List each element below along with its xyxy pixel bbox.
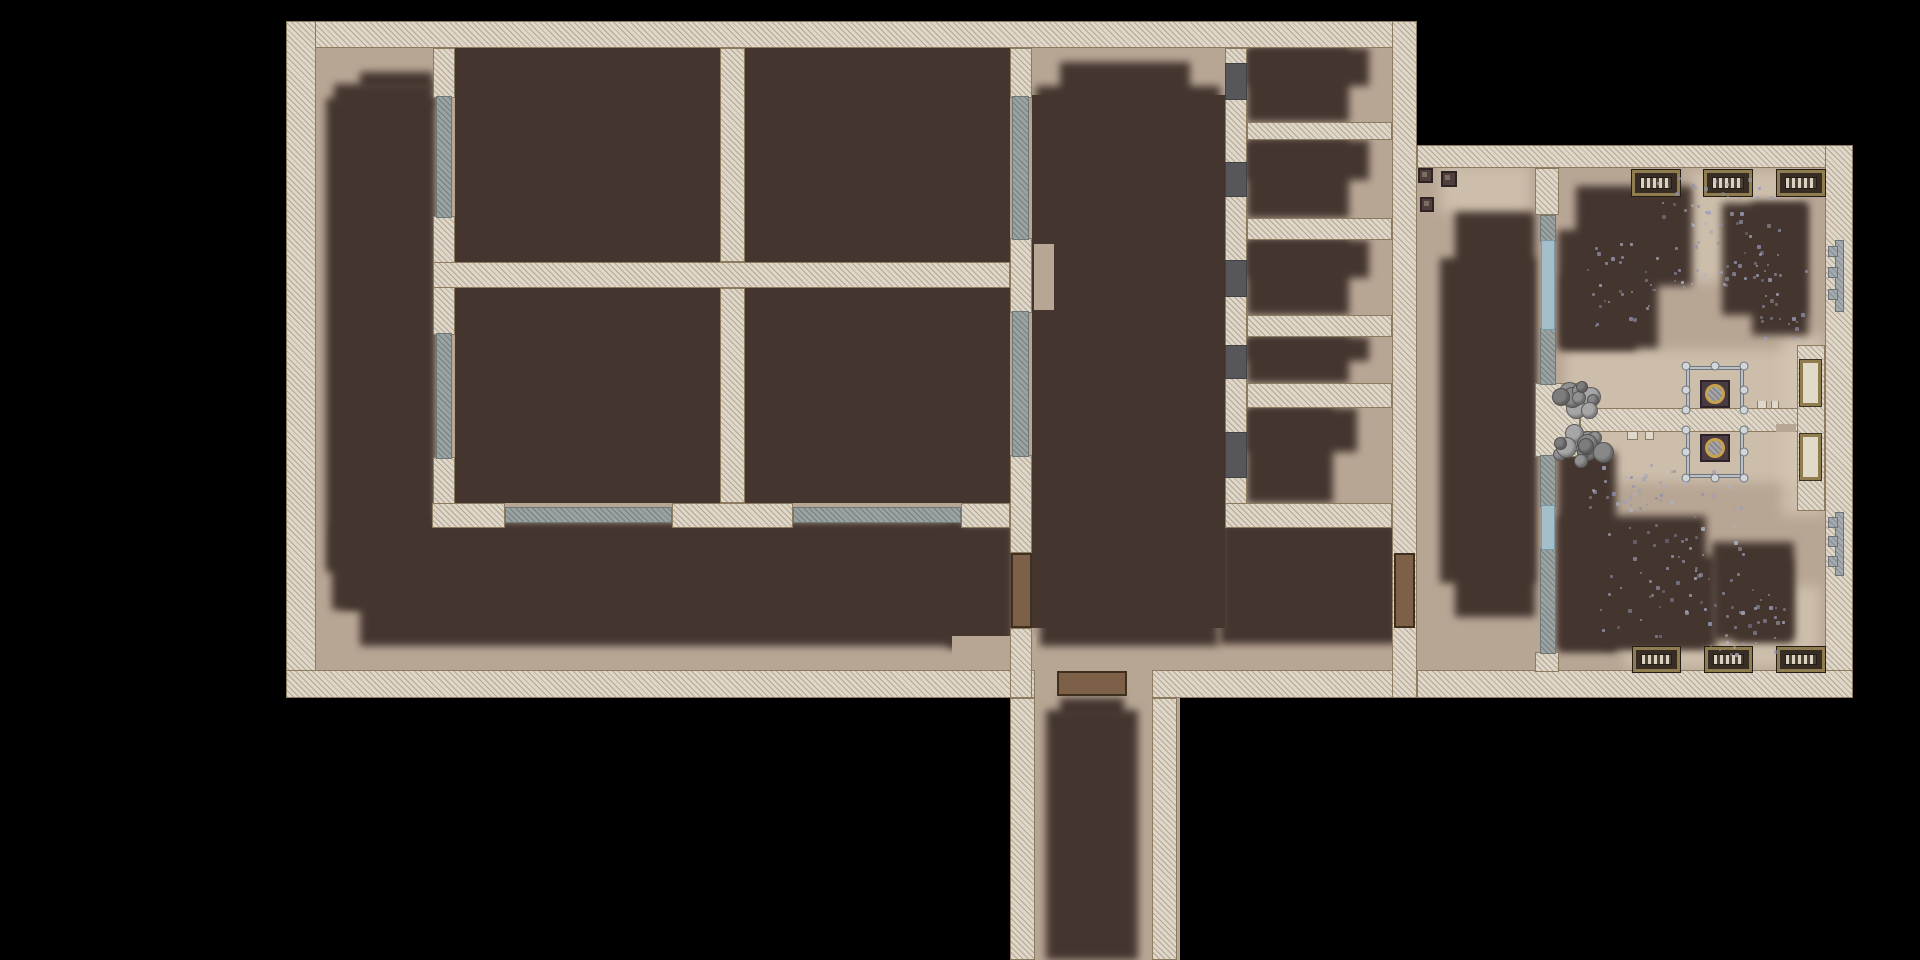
debris-speck bbox=[1774, 637, 1776, 639]
debris-speck bbox=[1604, 300, 1606, 302]
debris-speck bbox=[1662, 202, 1664, 204]
debris-speck bbox=[1592, 489, 1595, 492]
debris-speck bbox=[1778, 229, 1781, 232]
debris-speck bbox=[1760, 599, 1762, 601]
debris-speck bbox=[1606, 496, 1609, 499]
debris-speck bbox=[1630, 476, 1633, 479]
debris-speck bbox=[1673, 470, 1676, 473]
debris-speck bbox=[1620, 243, 1623, 246]
debris-speck bbox=[1763, 619, 1767, 623]
debris-speck bbox=[1718, 203, 1720, 205]
debris-speck bbox=[1597, 252, 1601, 256]
debris-speck bbox=[1675, 192, 1679, 196]
debris-speck bbox=[1788, 323, 1790, 325]
debris-speck bbox=[1744, 252, 1746, 254]
debris-speck bbox=[1683, 481, 1687, 485]
debris-speck bbox=[1779, 318, 1781, 320]
debris-speck bbox=[1748, 178, 1752, 182]
debris-speck bbox=[1654, 289, 1656, 291]
debris-speck bbox=[1633, 492, 1637, 496]
debris-speck bbox=[1646, 307, 1649, 310]
debris-speck bbox=[1667, 186, 1669, 188]
debris-speck bbox=[1770, 317, 1773, 320]
debris-speck bbox=[1683, 286, 1685, 288]
debris-speck bbox=[1587, 269, 1589, 271]
debris-speck bbox=[1755, 642, 1757, 644]
debris-speck bbox=[1678, 269, 1681, 272]
debris-speck bbox=[1779, 274, 1782, 277]
debris-speck bbox=[1730, 653, 1733, 656]
debris-speck bbox=[1694, 516, 1696, 518]
debris-speck bbox=[1659, 499, 1662, 502]
debris-speck bbox=[1718, 250, 1720, 252]
debris-speck bbox=[1701, 493, 1704, 496]
debris-speck bbox=[1694, 186, 1697, 189]
debris-speck bbox=[1632, 485, 1635, 488]
debris-speck bbox=[1797, 338, 1800, 341]
debris-speck bbox=[1721, 192, 1725, 196]
debris-speck bbox=[1674, 534, 1677, 537]
debris-speck bbox=[1764, 337, 1767, 340]
debris-speck bbox=[1701, 527, 1705, 531]
debris-speck bbox=[1629, 508, 1633, 512]
debris-speck bbox=[1720, 223, 1723, 226]
debris-speck bbox=[1695, 536, 1698, 539]
debris-speck bbox=[1801, 313, 1805, 317]
debris-speck bbox=[1756, 196, 1759, 199]
debris-speck bbox=[1649, 580, 1652, 583]
debris-speck bbox=[1735, 653, 1739, 657]
debris-speck bbox=[1617, 626, 1620, 629]
debris-speck bbox=[1760, 316, 1763, 319]
debris-speck bbox=[1712, 470, 1716, 474]
debris-speck bbox=[1589, 496, 1592, 499]
debris-speck bbox=[1726, 265, 1729, 268]
debris-speck bbox=[1726, 183, 1729, 186]
debris-speck bbox=[1685, 538, 1688, 541]
debris-speck bbox=[1753, 631, 1757, 635]
debris-speck bbox=[1656, 257, 1659, 260]
debris-speck bbox=[1745, 232, 1748, 235]
debris-speck bbox=[1621, 293, 1624, 296]
debris-speck bbox=[1697, 241, 1700, 244]
debris-speck bbox=[1648, 305, 1650, 307]
debris-speck bbox=[1697, 205, 1700, 208]
debris-speck bbox=[1642, 477, 1646, 481]
debris-speck bbox=[1643, 500, 1645, 502]
debris-speck bbox=[1678, 556, 1680, 558]
debris-speck bbox=[1749, 235, 1752, 238]
debris-speck bbox=[1792, 317, 1796, 321]
debris-speck bbox=[1700, 601, 1703, 604]
debris-speck bbox=[1734, 526, 1736, 528]
debris-speck bbox=[1589, 506, 1592, 509]
debris-speck bbox=[1691, 204, 1694, 207]
debris-speck bbox=[1704, 608, 1707, 611]
debris-speck bbox=[1757, 621, 1760, 624]
debris-speck bbox=[1717, 242, 1720, 245]
debris-speck bbox=[1702, 554, 1704, 556]
debris-speck bbox=[1756, 265, 1758, 267]
debris-speck bbox=[1738, 547, 1742, 551]
debris-speck bbox=[1623, 500, 1627, 504]
debris-speck bbox=[1805, 270, 1808, 273]
debris-speck bbox=[1703, 273, 1707, 277]
debris-speck bbox=[1595, 247, 1598, 250]
debris-speck bbox=[1796, 321, 1798, 323]
debris-speck bbox=[1660, 494, 1663, 497]
debris-speck bbox=[1756, 274, 1759, 277]
debris-speck bbox=[1676, 581, 1680, 585]
debris-speck bbox=[1651, 594, 1654, 597]
debris-speck bbox=[1629, 495, 1632, 498]
debris-speck bbox=[1695, 570, 1697, 572]
debris-speck bbox=[1762, 305, 1765, 308]
debris-speck bbox=[1742, 553, 1745, 556]
debris-speck bbox=[1740, 212, 1744, 216]
debris-speck bbox=[1744, 277, 1747, 280]
debris-speck bbox=[1639, 507, 1642, 510]
debris-speck bbox=[1782, 621, 1785, 624]
debris-speck bbox=[1730, 579, 1733, 582]
debris-speck bbox=[1726, 641, 1729, 644]
debris-speck bbox=[1765, 295, 1767, 297]
debris-speck bbox=[1600, 609, 1602, 611]
debris-speck bbox=[1769, 606, 1773, 610]
debris-speck bbox=[1711, 494, 1715, 498]
debris-speck bbox=[1767, 224, 1771, 228]
debris-speck bbox=[1752, 589, 1754, 591]
debris-speck bbox=[1604, 480, 1607, 483]
debris-speck bbox=[1612, 492, 1616, 496]
debris-speck bbox=[1726, 615, 1729, 618]
debris-speck bbox=[1625, 476, 1628, 479]
debris-speck bbox=[1633, 540, 1637, 544]
debris-speck bbox=[1657, 182, 1660, 185]
debris-speck bbox=[1682, 560, 1685, 563]
debris-speck bbox=[1666, 567, 1669, 570]
debris-speck bbox=[1795, 327, 1799, 331]
debris-speck bbox=[1619, 261, 1622, 264]
debris-speck bbox=[1709, 230, 1713, 234]
debris-speck bbox=[1699, 573, 1703, 577]
debris-speck bbox=[1722, 592, 1725, 595]
debris-speck bbox=[1704, 187, 1708, 191]
debris-speck bbox=[1681, 281, 1684, 284]
debris-speck bbox=[1734, 261, 1737, 264]
debris-speck bbox=[1768, 278, 1772, 282]
debris-speck bbox=[1640, 619, 1642, 621]
debris-speck bbox=[1685, 611, 1689, 615]
debris-speck bbox=[1608, 593, 1611, 596]
debris-speck bbox=[1602, 466, 1606, 470]
debris-speck bbox=[1610, 575, 1613, 578]
debris-speck bbox=[1756, 605, 1760, 609]
debris-speck bbox=[1662, 215, 1666, 219]
debris-speck bbox=[1783, 608, 1786, 611]
debris-speck bbox=[1740, 507, 1743, 510]
debris-speck bbox=[1728, 485, 1732, 489]
debris-speck bbox=[1708, 622, 1712, 626]
debris-speck bbox=[1655, 635, 1658, 638]
debris-speck bbox=[1605, 262, 1608, 265]
debris-speck bbox=[1673, 203, 1676, 206]
debris-speck bbox=[1670, 501, 1674, 505]
debris-speck bbox=[1652, 289, 1654, 291]
debris-speck bbox=[1776, 621, 1780, 625]
debris-speck bbox=[1647, 531, 1650, 534]
debris-speck bbox=[1631, 291, 1633, 293]
debris-speck bbox=[1659, 481, 1662, 484]
debris-speck bbox=[1671, 555, 1674, 558]
debris-speck bbox=[1775, 303, 1778, 306]
debris-speck bbox=[1659, 635, 1662, 638]
debris-speck bbox=[1633, 557, 1637, 561]
debris-speck bbox=[1742, 642, 1745, 645]
debris-speck bbox=[1650, 284, 1652, 286]
debris-speck bbox=[1655, 497, 1658, 500]
debris-speck bbox=[1725, 634, 1728, 637]
debris-speck bbox=[1689, 547, 1692, 550]
map-viewport[interactable] bbox=[0, 0, 1920, 960]
debris-speck bbox=[1650, 464, 1653, 467]
debris-speck bbox=[1791, 337, 1794, 340]
debris-speck bbox=[1731, 606, 1734, 609]
debris-speck bbox=[1714, 604, 1717, 607]
debris-speck bbox=[1694, 245, 1698, 249]
debris-speck bbox=[1734, 626, 1737, 629]
debris-speck bbox=[1723, 283, 1726, 286]
debris-speck bbox=[1618, 501, 1620, 503]
debris-speck bbox=[1733, 508, 1736, 511]
debris-speck bbox=[1675, 247, 1678, 250]
debris-speck bbox=[1739, 220, 1743, 224]
debris-speck bbox=[1630, 243, 1633, 246]
debris-speck bbox=[1774, 650, 1778, 654]
debris-speck bbox=[1714, 180, 1717, 183]
debris-speck bbox=[1774, 616, 1777, 619]
debris-speck bbox=[1611, 257, 1615, 261]
debris-speck bbox=[1620, 587, 1622, 589]
debris-speck bbox=[1681, 540, 1684, 543]
debris-speck bbox=[1710, 645, 1712, 647]
debris-speck bbox=[1694, 577, 1697, 580]
debris-speck bbox=[1737, 573, 1740, 576]
debris-speck bbox=[1608, 301, 1610, 303]
debris-speck bbox=[1733, 646, 1736, 649]
debris-speck bbox=[1602, 629, 1605, 632]
debris-speck bbox=[1608, 533, 1611, 536]
debris-speck bbox=[1628, 609, 1632, 613]
debris-speck bbox=[1592, 293, 1595, 296]
debris-speck bbox=[1689, 594, 1692, 597]
debris-speck bbox=[1646, 504, 1648, 506]
debris-speck bbox=[1628, 498, 1631, 501]
debris-speck bbox=[1732, 470, 1734, 472]
debris-speck bbox=[1707, 211, 1711, 215]
debris-speck bbox=[1659, 606, 1661, 608]
debris-speck bbox=[1665, 539, 1669, 543]
debris-speck bbox=[1655, 524, 1658, 527]
debris-speck bbox=[1767, 264, 1769, 266]
debris-speck bbox=[1708, 578, 1710, 580]
debris-speck bbox=[1674, 272, 1677, 275]
debris-speck bbox=[1720, 271, 1723, 274]
debris-speck bbox=[1764, 270, 1766, 272]
debris-speck bbox=[1770, 299, 1774, 303]
debris-speck bbox=[1725, 277, 1729, 281]
debris-speck bbox=[1696, 269, 1699, 272]
debris-speck bbox=[1730, 212, 1734, 216]
debris-speck bbox=[1768, 594, 1770, 596]
debris-speck bbox=[1691, 283, 1693, 285]
debris-speck bbox=[1695, 567, 1698, 570]
debris-speck bbox=[1662, 590, 1665, 593]
debris-speck bbox=[1671, 471, 1673, 473]
debris-speck bbox=[1630, 504, 1632, 506]
debris-speck bbox=[1732, 272, 1736, 276]
debris-speck bbox=[1596, 323, 1599, 326]
debris-speck bbox=[1775, 607, 1777, 609]
debris-speck bbox=[1761, 320, 1764, 323]
debris-speck bbox=[1719, 649, 1721, 651]
layer-debris bbox=[0, 0, 1920, 960]
debris-speck bbox=[1769, 196, 1773, 200]
debris-speck bbox=[1739, 611, 1742, 614]
debris-speck bbox=[1633, 318, 1637, 322]
debris-speck bbox=[1645, 279, 1648, 282]
debris-speck bbox=[1774, 273, 1777, 276]
debris-speck bbox=[1759, 253, 1762, 256]
debris-speck bbox=[1776, 293, 1779, 296]
debris-speck bbox=[1678, 177, 1681, 180]
debris-speck bbox=[1738, 264, 1742, 268]
debris-speck bbox=[1599, 305, 1602, 308]
debris-speck bbox=[1670, 598, 1674, 602]
debris-speck bbox=[1599, 284, 1602, 287]
debris-speck bbox=[1691, 223, 1693, 225]
debris-speck bbox=[1758, 187, 1761, 190]
debris-speck bbox=[1645, 271, 1647, 273]
debris-speck bbox=[1739, 197, 1742, 200]
debris-speck bbox=[1621, 256, 1624, 259]
debris-speck bbox=[1727, 196, 1729, 198]
debris-speck bbox=[1629, 527, 1631, 529]
debris-speck bbox=[1704, 222, 1707, 225]
debris-speck bbox=[1757, 245, 1761, 249]
debris-speck bbox=[1748, 624, 1752, 628]
debris-speck bbox=[1664, 484, 1667, 487]
debris-speck bbox=[1656, 586, 1660, 590]
debris-speck bbox=[1653, 544, 1656, 547]
debris-speck bbox=[1734, 541, 1738, 545]
debris-speck bbox=[1638, 489, 1641, 492]
debris-speck bbox=[1761, 279, 1764, 282]
debris-speck bbox=[1674, 280, 1676, 282]
debris-speck bbox=[1777, 254, 1779, 256]
debris-speck bbox=[1684, 209, 1687, 212]
debris-speck bbox=[1640, 572, 1642, 574]
